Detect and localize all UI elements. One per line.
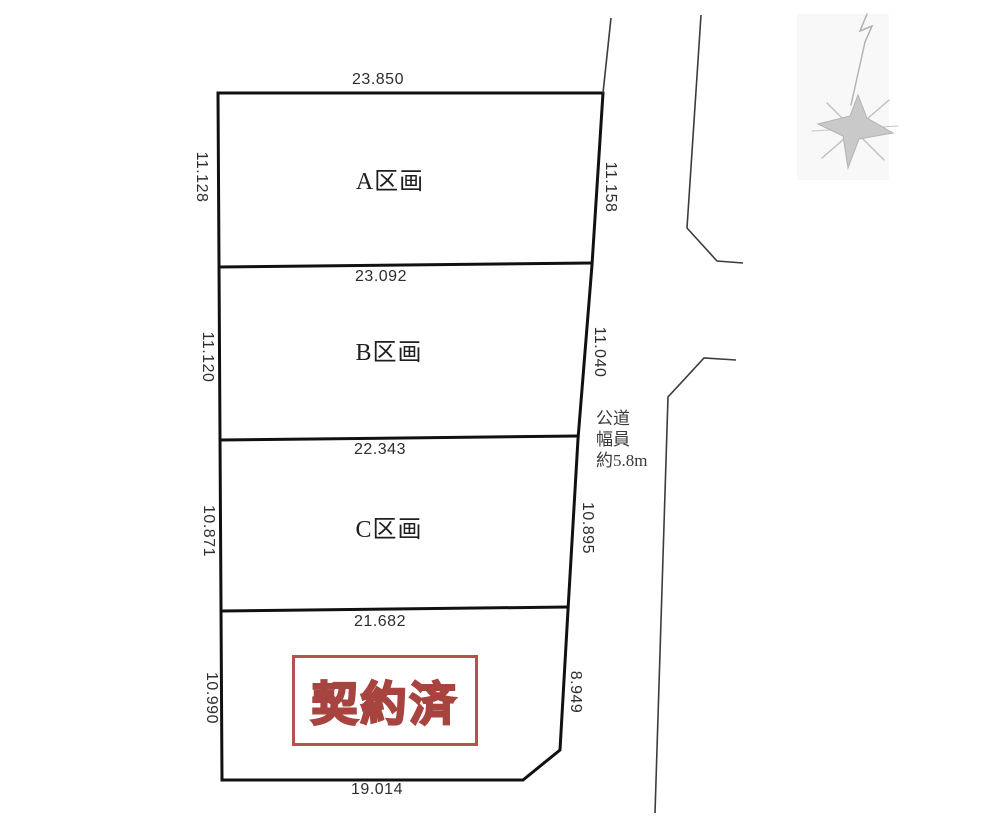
road-near-edge-line [603,18,611,93]
dim-bottom-d: 19.014 [327,781,427,799]
dim-left-c: 10.871 [200,499,216,563]
plot-label-c: C区画 [319,515,459,545]
dim-right-b: 11.040 [591,320,607,384]
dim-top-d: 21.682 [330,613,430,631]
dim-right-a: 11.158 [602,155,618,219]
dim-top-c: 22.343 [330,441,430,459]
plot-label-a: A区画 [320,167,460,197]
road-width-label: 公道 幅員 約5.8m [596,408,647,471]
road-far-edge-upper-line [687,15,743,263]
dim-left-a: 11.128 [193,145,209,209]
road-width-line3: 約5.8m [596,450,647,471]
dim-left-b: 11.120 [199,325,215,389]
dim-top-a: 23.850 [328,71,428,89]
survey-drawing [0,0,1000,822]
road-width-line2: 幅員 [596,429,647,450]
contracted-stamp: 契約済 [292,655,478,746]
dim-right-d: 8.949 [567,660,583,724]
plot-diagram: 23.850 23.092 22.343 21.682 19.014 11.12… [0,0,1000,822]
road-width-line1: 公道 [596,408,647,429]
contracted-stamp-text: 契約済 [312,668,459,734]
dim-top-b: 23.092 [331,268,431,286]
dim-left-d: 10.990 [203,666,219,730]
compass-background [797,14,889,180]
plot-label-b: B区画 [319,338,459,368]
dim-right-c: 10.895 [579,496,595,560]
road-far-edge-lower-line [655,358,736,813]
